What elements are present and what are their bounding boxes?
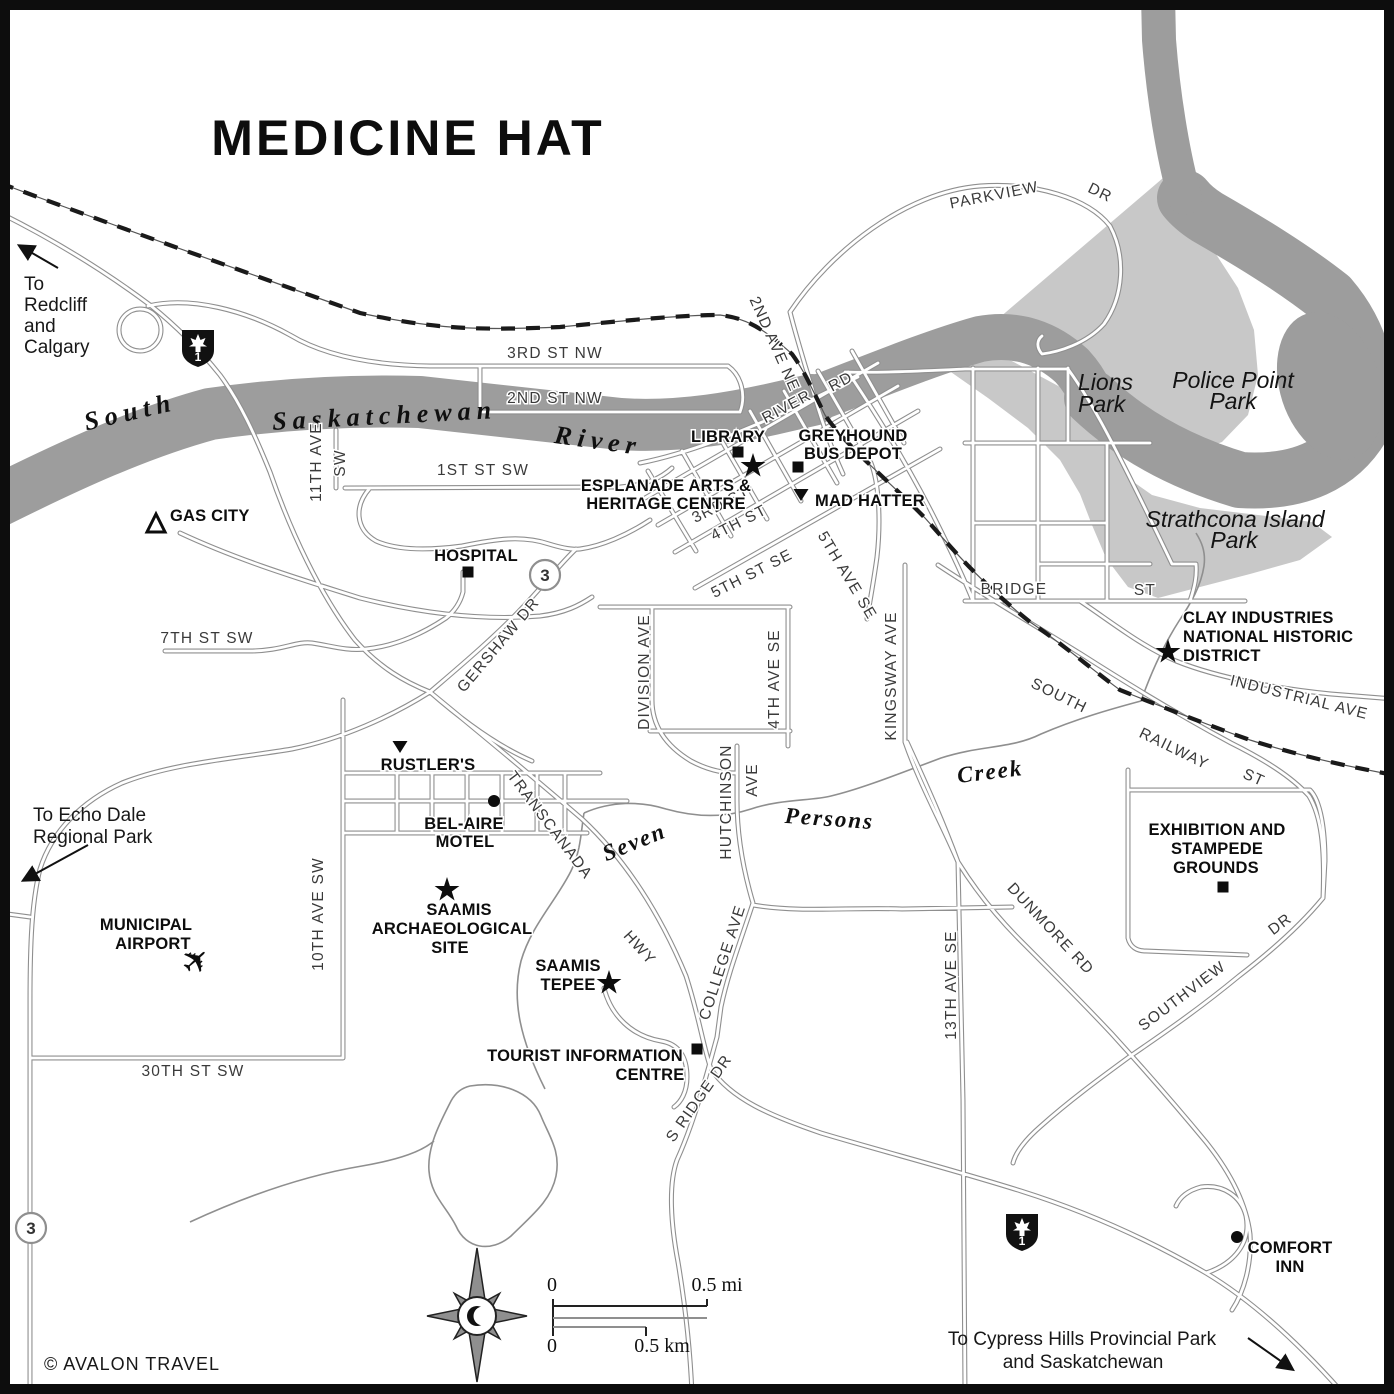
label-note-redcliff-2: Redcliff — [24, 295, 88, 316]
svg-text:3: 3 — [540, 566, 549, 585]
label-st-11th-ave: 11TH AVE — [308, 422, 325, 502]
label-map-title: MEDICINE HAT — [211, 110, 604, 166]
label-strathcona-2: Park — [1210, 527, 1259, 553]
bel-aire-motel-marker — [488, 795, 500, 807]
label-st-30th-sw: 30TH ST SW — [141, 1063, 244, 1080]
label-st-hutchinson: HUTCHINSON — [718, 744, 735, 859]
label-st-bridge-st: ST — [1134, 582, 1156, 599]
label-poi-esplanade-1: ESPLANADE ARTS & — [581, 477, 751, 495]
label-st-2nd-nw: 2ND ST NW — [507, 390, 603, 407]
label-poi-gas-city: GAS CITY — [170, 507, 250, 525]
svg-text:1: 1 — [195, 350, 202, 364]
label-poi-saamis-arch-3: SITE — [431, 939, 468, 957]
label-poi-greyhound-2: BUS DEPOT — [804, 445, 902, 463]
label-poi-mad-hatter: MAD HATTER — [815, 492, 925, 510]
label-poi-tourist-1: TOURIST INFORMATION — [487, 1047, 683, 1065]
label-st-kingsway: KINGSWAY AVE — [883, 611, 900, 740]
map-canvas: MEDICINE HAT — [0, 0, 1394, 1394]
label-poi-tepee-2: TEPEE — [540, 976, 595, 994]
label-poi-belaire-1: BEL-AIRE — [424, 815, 504, 833]
tourist-information-marker — [692, 1044, 703, 1055]
label-poi-clay-3: DISTRICT — [1183, 647, 1261, 665]
svg-text:3: 3 — [26, 1219, 35, 1238]
label-note-redcliff-4: Calgary — [24, 337, 90, 358]
label-poi-airport-2: AIRPORT — [115, 935, 191, 953]
label-police-point-2: Park — [1209, 388, 1258, 414]
label-poi-exhibition-1: EXHIBITION AND — [1149, 821, 1286, 839]
label-poi-saamis-arch-2: ARCHAEOLOGICAL — [372, 920, 532, 938]
exhibition-grounds-marker — [1218, 882, 1229, 893]
label-st-10th-ave: 10TH AVE SW — [310, 857, 327, 971]
label-scale-mi-0: 0 — [547, 1274, 557, 1296]
label-poi-hospital: HOSPITAL — [434, 547, 518, 565]
label-poi-belaire-2: MOTEL — [436, 833, 495, 851]
medicine-hat-map: MEDICINE HAT — [0, 0, 1394, 1394]
label-st-bridge: BRIDGE — [981, 581, 1048, 598]
label-st-7th-sw: 7TH ST SW — [160, 630, 253, 647]
label-scale-km-0: 0 — [547, 1335, 557, 1357]
label-lions-park-2: Park — [1078, 391, 1127, 417]
label-poi-tourist-2: CENTRE — [615, 1066, 684, 1084]
label-copyright: © AVALON TRAVEL — [44, 1354, 220, 1374]
label-poi-tepee-1: SAAMIS — [535, 957, 600, 975]
svg-text:1: 1 — [1019, 1234, 1026, 1248]
label-poi-clay-1: CLAY INDUSTRIES — [1183, 609, 1334, 627]
label-st-division: DIVISION AVE — [636, 614, 653, 730]
label-poi-esplanade-2: HERITAGE CENTRE — [586, 495, 745, 513]
library-marker — [733, 447, 744, 458]
label-poi-clay-2: NATIONAL HISTORIC — [1183, 628, 1353, 646]
label-note-echo-1: To Echo Dale — [33, 805, 146, 826]
label-poi-comfort-2: INN — [1275, 1258, 1304, 1276]
label-st-hutchinson-ave: AVE — [744, 763, 761, 796]
label-poi-rustlers: RUSTLER'S — [381, 756, 476, 774]
label-st-11th-sw: SW — [332, 449, 349, 476]
hospital-marker — [463, 567, 474, 578]
route-circle-3: 3 — [530, 560, 560, 590]
label-poi-exhibition-3: GROUNDS — [1173, 859, 1259, 877]
label-note-cypress-2: and Saskatchewan — [1003, 1352, 1164, 1373]
label-note-redcliff-3: and — [24, 316, 56, 337]
label-poi-library: LIBRARY — [691, 428, 765, 446]
label-scale-km: 0.5 km — [634, 1335, 690, 1357]
label-st-3rd-nw: 3RD ST NW — [507, 345, 603, 362]
label-poi-exhibition-2: STAMPEDE — [1171, 840, 1263, 858]
label-st-1st-sw: 1ST ST SW — [437, 462, 529, 479]
route-circle-3: 3 — [16, 1213, 46, 1243]
label-scale-mi: 0.5 mi — [691, 1274, 743, 1296]
greyhound-bus-depot-marker — [793, 462, 804, 473]
label-note-echo-2: Regional Park — [33, 827, 153, 848]
comfort-inn-marker — [1231, 1231, 1243, 1243]
label-st-4th-ave-se: 4TH AVE SE — [766, 629, 783, 729]
label-poi-airport-1: MUNICIPAL — [100, 916, 192, 934]
label-note-cypress-1: To Cypress Hills Provincial Park — [948, 1329, 1217, 1350]
label-note-redcliff-1: To — [24, 274, 44, 295]
label-poi-saamis-arch-1: SAAMIS — [426, 901, 491, 919]
label-poi-greyhound-1: GREYHOUND — [798, 427, 907, 445]
label-st-13th-ave: 13TH AVE SE — [943, 930, 960, 1039]
label-poi-comfort-1: COMFORT — [1248, 1239, 1333, 1257]
